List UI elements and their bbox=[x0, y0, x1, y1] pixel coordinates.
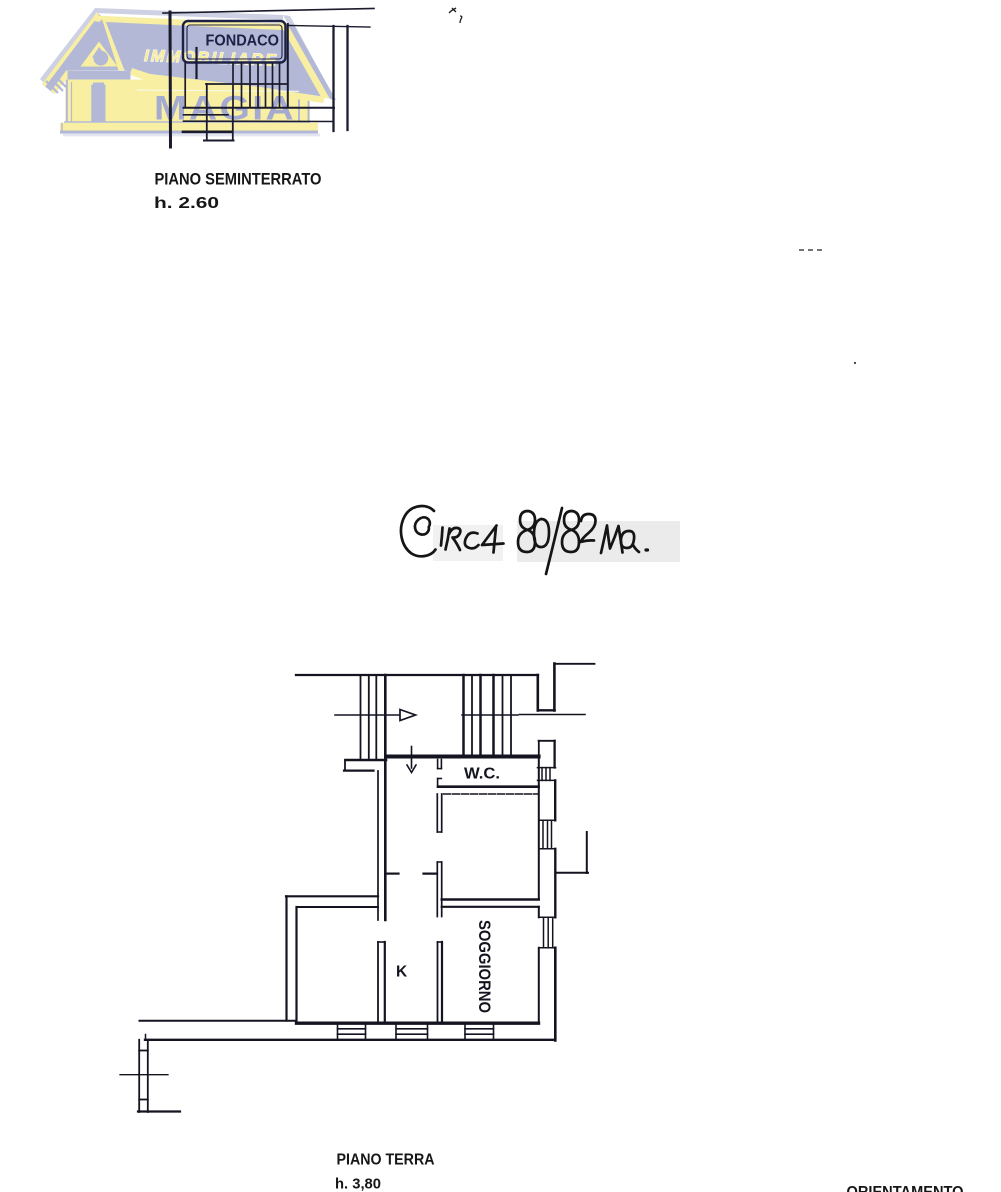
svg-text:SOGGIORNO: SOGGIORNO bbox=[475, 920, 493, 1013]
svg-text:h. 3,80: h. 3,80 bbox=[335, 1176, 381, 1192]
svg-text:h. 2.60: h. 2.60 bbox=[154, 195, 219, 212]
svg-text:K: K bbox=[396, 964, 408, 981]
svg-text:PIANO TERRA: PIANO TERRA bbox=[337, 1152, 435, 1169]
svg-text:FONDACO: FONDACO bbox=[206, 33, 280, 50]
svg-text:ORIENTAMENTO: ORIENTAMENTO bbox=[847, 1184, 964, 1192]
svg-text:PIANO SEMINTERRATO: PIANO SEMINTERRATO bbox=[155, 171, 322, 189]
svg-text:W.C.: W.C. bbox=[464, 766, 500, 783]
